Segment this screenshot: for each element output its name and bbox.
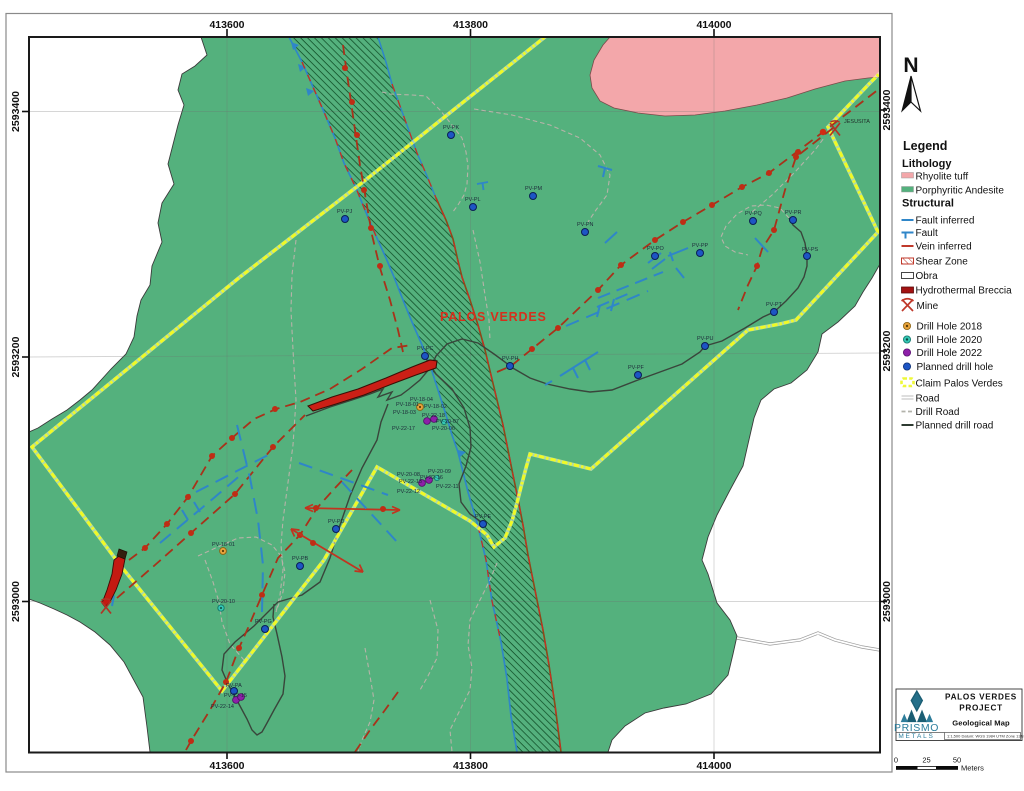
svg-text:Lithology: Lithology: [902, 158, 952, 170]
svg-text:PV-PJ: PV-PJ: [337, 209, 353, 215]
svg-text:Fault inferred: Fault inferred: [916, 216, 975, 227]
svg-text:Mine: Mine: [917, 301, 939, 312]
svg-text:PV-PU: PV-PU: [697, 336, 714, 342]
svg-text:25: 25: [922, 756, 930, 765]
svg-text:414000: 414000: [696, 19, 731, 31]
svg-text:Hydrothermal Breccia: Hydrothermal Breccia: [916, 286, 1013, 297]
svg-text:PV-PO: PV-PO: [647, 246, 665, 252]
svg-text:Road: Road: [916, 394, 940, 405]
svg-text:PV-22-17: PV-22-17: [392, 426, 415, 432]
svg-text:PV-18-03: PV-18-03: [393, 410, 416, 416]
svg-text:PV-PR: PV-PR: [785, 210, 802, 216]
svg-text:PROJECT: PROJECT: [959, 704, 1003, 713]
svg-text:2593400: 2593400: [881, 89, 893, 130]
svg-text:413600: 413600: [209, 19, 244, 31]
svg-text:PV-20-07: PV-20-07: [436, 419, 459, 425]
svg-text:413800: 413800: [453, 760, 488, 772]
svg-text:0: 0: [894, 756, 898, 765]
svg-text:PV-PA: PV-PA: [226, 683, 242, 689]
svg-text:PV-18-02: PV-18-02: [424, 404, 447, 410]
svg-text:Planned drill hole: Planned drill hole: [917, 362, 994, 373]
svg-text:Porphyritic Andesite: Porphyritic Andesite: [916, 186, 1005, 197]
svg-text:PV-PC: PV-PC: [417, 346, 434, 352]
svg-text:PV-18-01: PV-18-01: [396, 402, 419, 408]
svg-text:Structural: Structural: [902, 198, 954, 210]
svg-text:2593000: 2593000: [10, 581, 22, 622]
svg-text:2593400: 2593400: [10, 91, 22, 132]
svg-text:Obra: Obra: [916, 271, 939, 282]
svg-text:PV-22-12: PV-22-12: [397, 489, 420, 495]
svg-text:PV-PB: PV-PB: [292, 556, 309, 562]
svg-text:PV-PM: PV-PM: [525, 186, 543, 192]
svg-text:PV-22-15: PV-22-15: [224, 693, 247, 699]
svg-text:413600: 413600: [209, 760, 244, 772]
svg-text:PV-PS: PV-PS: [802, 247, 819, 253]
svg-text:JESUSITA: JESUSITA: [844, 119, 870, 125]
svg-text:Shear Zone: Shear Zone: [916, 257, 969, 268]
svg-text:PALOS VERDES: PALOS VERDES: [945, 693, 1017, 702]
svg-text:METALS: METALS: [898, 733, 934, 740]
svg-text:Drill Hole 2018: Drill Hole 2018: [917, 322, 983, 333]
svg-text:PV-20-06: PV-20-06: [432, 426, 455, 432]
svg-text:PALOS VERDES: PALOS VERDES: [440, 310, 547, 324]
svg-text:PV-PG: PV-PG: [255, 619, 272, 625]
svg-text:414000: 414000: [696, 760, 731, 772]
svg-text:Geological Map: Geological Map: [952, 719, 1010, 728]
svg-text:PV-PE: PV-PE: [475, 514, 492, 520]
svg-text:Meters: Meters: [961, 764, 984, 773]
svg-text:1:1,500 Datum: WGS 1984 UTM: 1:1,500 Datum: WGS 1984 UTM Zone 13N: [947, 734, 1024, 739]
svg-text:Fault: Fault: [916, 228, 938, 239]
svg-text:PV-22-16: PV-22-16: [420, 475, 443, 481]
svg-text:PV-PP: PV-PP: [692, 243, 709, 249]
svg-text:Legend: Legend: [903, 139, 947, 153]
svg-text:PV-20-10: PV-20-10: [212, 599, 235, 605]
svg-text:PV-PH: PV-PH: [502, 356, 519, 362]
svg-text:2593200: 2593200: [881, 330, 893, 371]
svg-text:PV-PD: PV-PD: [328, 519, 345, 525]
svg-text:413800: 413800: [453, 19, 488, 31]
svg-text:PV-PN: PV-PN: [577, 222, 594, 228]
svg-text:Drill Hole 2022: Drill Hole 2022: [917, 348, 983, 359]
svg-text:PV-20-08: PV-20-08: [397, 472, 420, 478]
svg-text:2593200: 2593200: [10, 336, 22, 377]
svg-text:PV-PK: PV-PK: [443, 125, 460, 131]
svg-text:Drill Road: Drill Road: [916, 407, 960, 418]
svg-text:PV-22-13: PV-22-13: [399, 479, 422, 485]
svg-text:Planned drill road: Planned drill road: [916, 421, 994, 432]
svg-text:50: 50: [953, 756, 961, 765]
svg-text:PV-18-01: PV-18-01: [212, 542, 235, 548]
svg-text:N: N: [903, 54, 918, 77]
svg-text:PV-PT: PV-PT: [766, 302, 783, 308]
svg-text:PV-22-11: PV-22-11: [436, 484, 459, 490]
svg-text:PV-PQ: PV-PQ: [745, 211, 763, 217]
svg-text:PV-PL: PV-PL: [465, 197, 481, 203]
svg-text:Rhyolite tuff: Rhyolite tuff: [916, 172, 969, 183]
svg-text:Claim Palos Verdes: Claim Palos Verdes: [916, 379, 1003, 390]
svg-text:PV-PF: PV-PF: [628, 365, 645, 371]
svg-text:Vein inferred: Vein inferred: [916, 242, 972, 253]
svg-text:Drill Hole 2020: Drill Hole 2020: [917, 335, 983, 346]
svg-text:PV-22-14: PV-22-14: [211, 704, 234, 710]
svg-text:2593000: 2593000: [881, 581, 893, 622]
